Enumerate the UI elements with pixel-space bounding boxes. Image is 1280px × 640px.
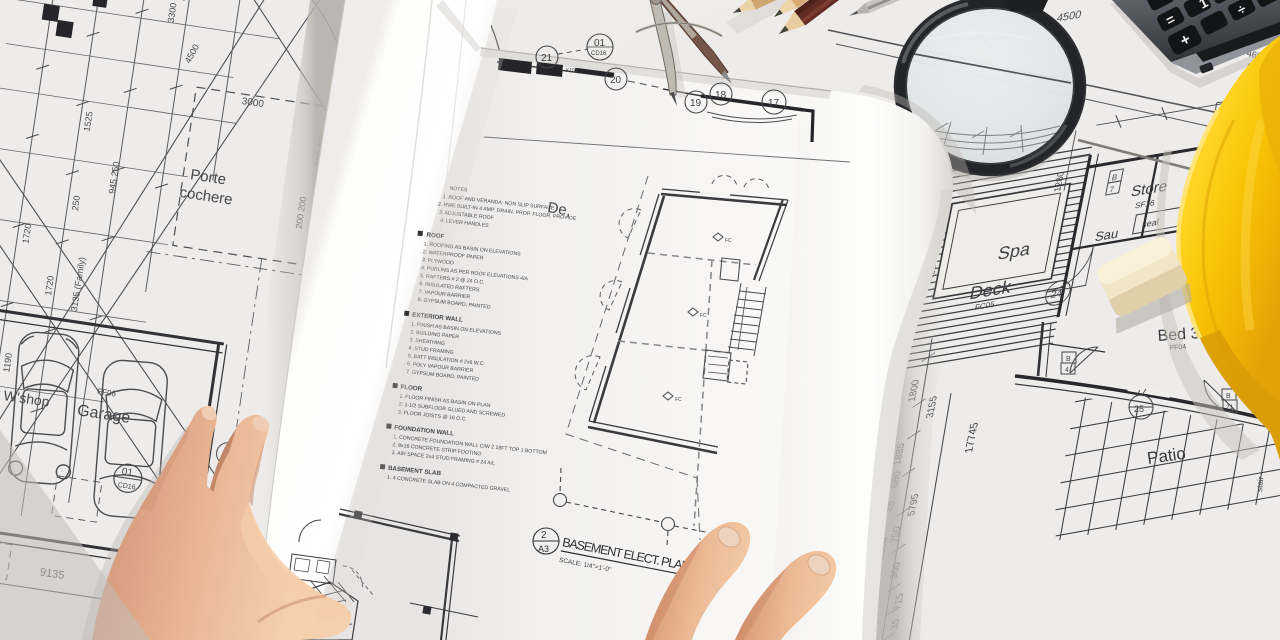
svg-text:19: 19: [690, 98, 702, 109]
svg-text:FC: FC: [700, 313, 707, 319]
svg-text:25: 25: [1134, 404, 1144, 414]
svg-text:stair: stair: [1255, 476, 1265, 492]
svg-text:01: 01: [594, 38, 606, 49]
svg-text:CD16: CD16: [591, 51, 607, 57]
svg-text:20: 20: [610, 75, 622, 86]
svg-text:B: B: [1226, 393, 1231, 400]
svg-text:FC: FC: [725, 238, 732, 244]
svg-text:17: 17: [768, 98, 780, 109]
svg-text:K101: K101: [566, 68, 578, 74]
svg-text:B: B: [1066, 356, 1071, 363]
svg-text:FC: FC: [675, 397, 682, 403]
svg-text:2: 2: [541, 530, 547, 541]
svg-text:18: 18: [715, 90, 727, 101]
svg-text:4: 4: [1065, 367, 1069, 374]
svg-text:01: 01: [121, 466, 134, 479]
svg-text:21: 21: [1226, 404, 1234, 411]
svg-text:21: 21: [541, 53, 553, 64]
svg-text:A3: A3: [538, 544, 549, 554]
